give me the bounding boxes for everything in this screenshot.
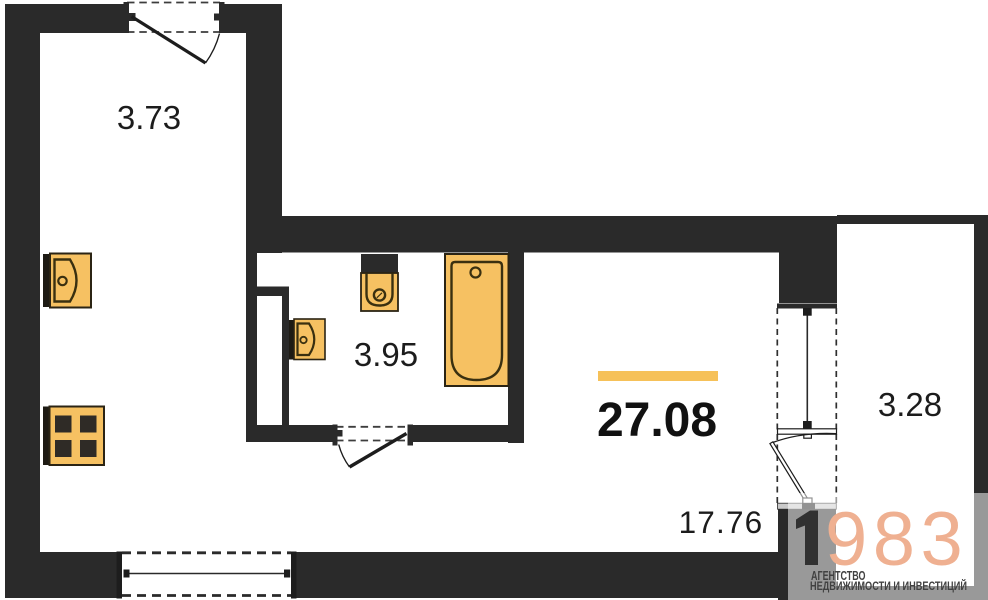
svg-text:27.08: 27.08: [597, 394, 717, 447]
svg-text:3.95: 3.95: [354, 336, 418, 373]
svg-text:17.76: 17.76: [679, 504, 764, 540]
svg-text:3.73: 3.73: [117, 99, 181, 136]
svg-text:3.28: 3.28: [878, 386, 942, 423]
svg-text:НЕДВИЖИМОСТИ И ИНВЕСТИЦИЙ: НЕДВИЖИМОСТИ И ИНВЕСТИЦИЙ: [810, 578, 967, 593]
